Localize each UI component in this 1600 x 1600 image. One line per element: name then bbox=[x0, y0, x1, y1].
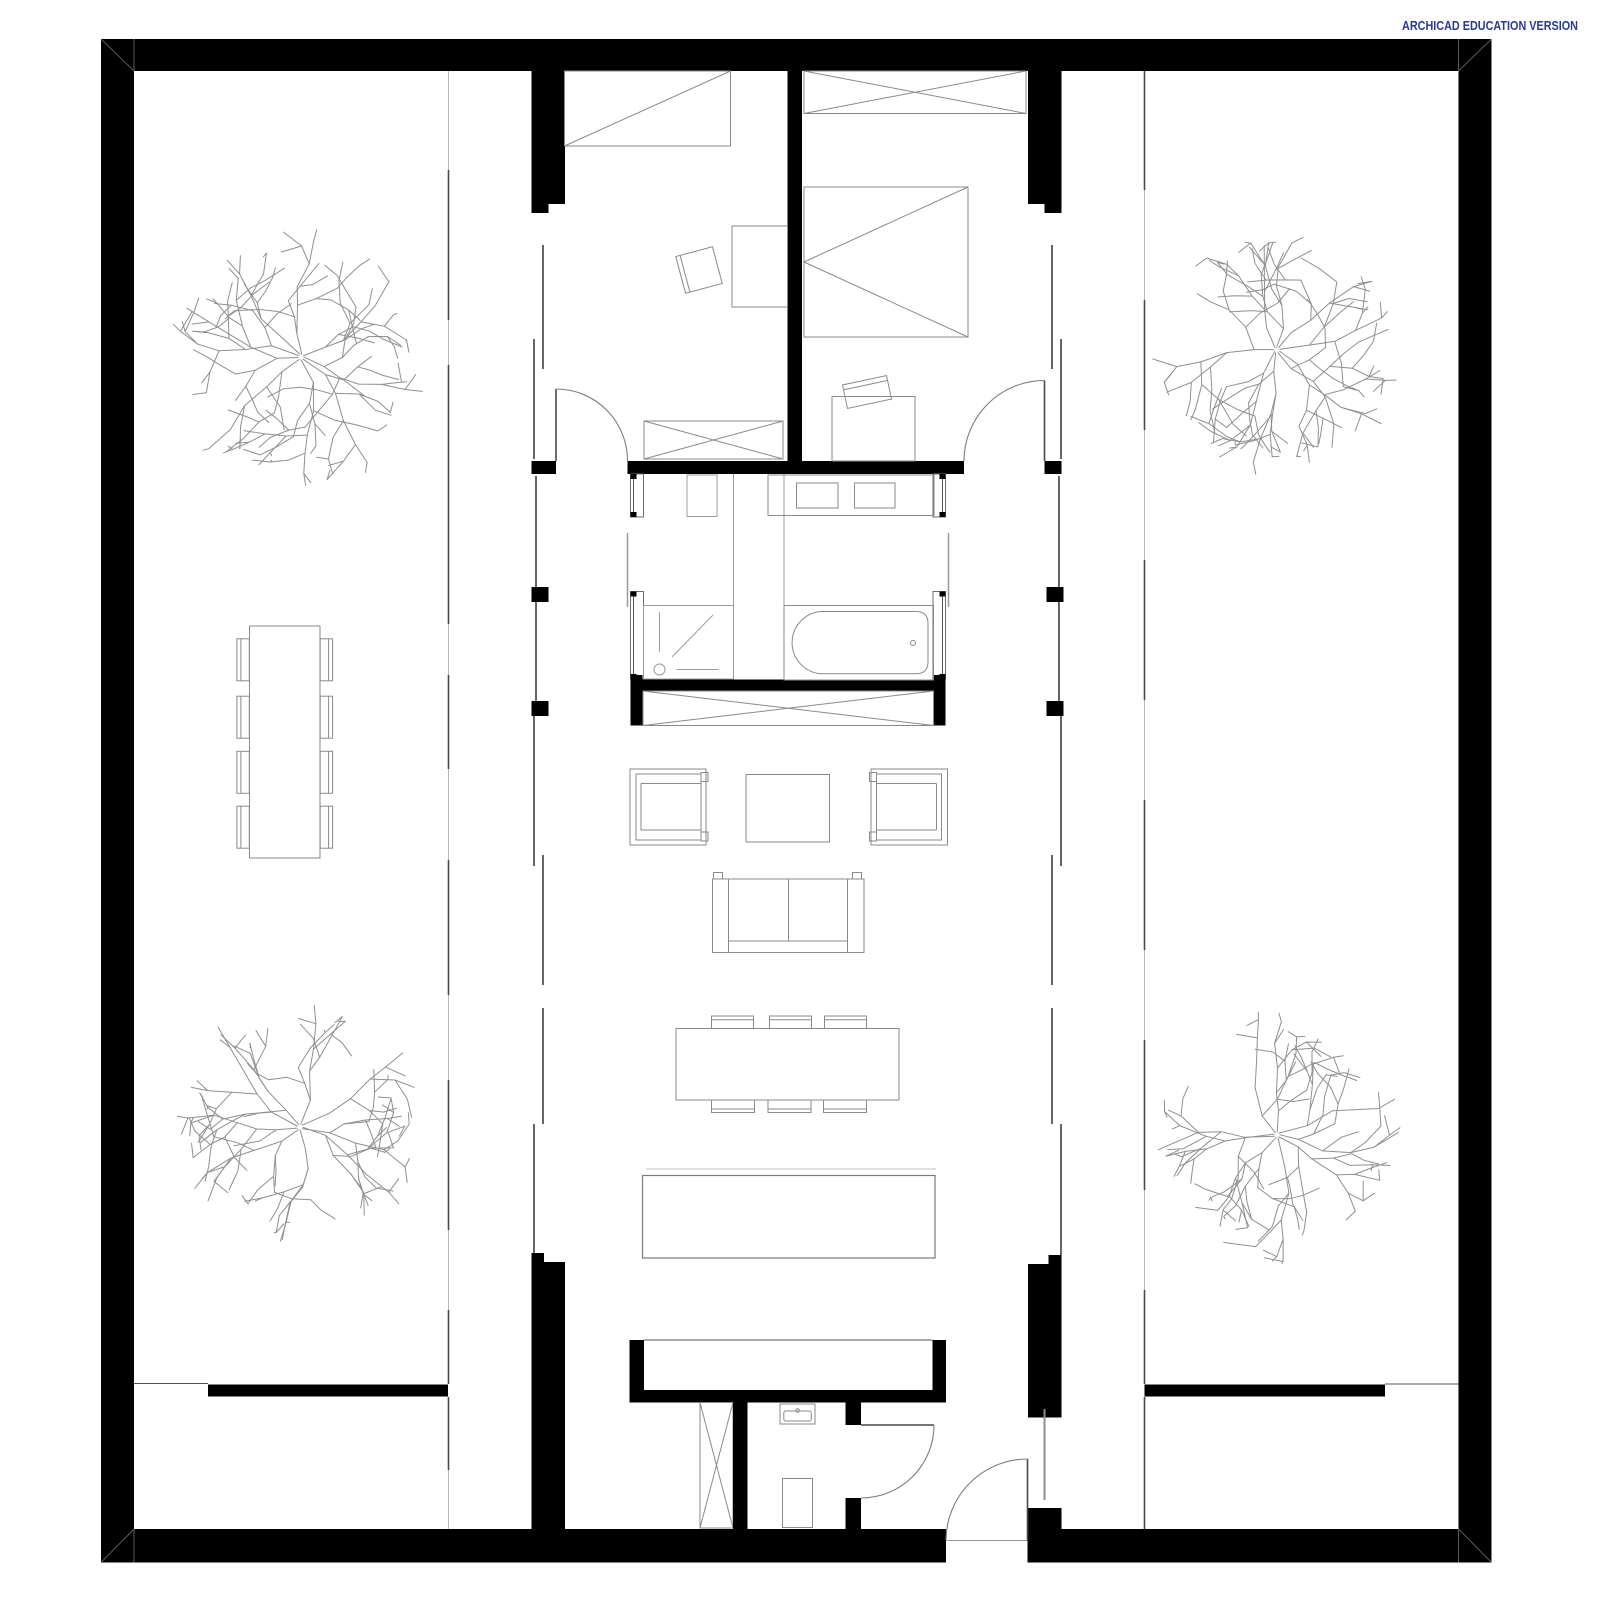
svg-text:ARCHICAD EDUCATION VERSION: ARCHICAD EDUCATION VERSION bbox=[1402, 18, 1578, 33]
